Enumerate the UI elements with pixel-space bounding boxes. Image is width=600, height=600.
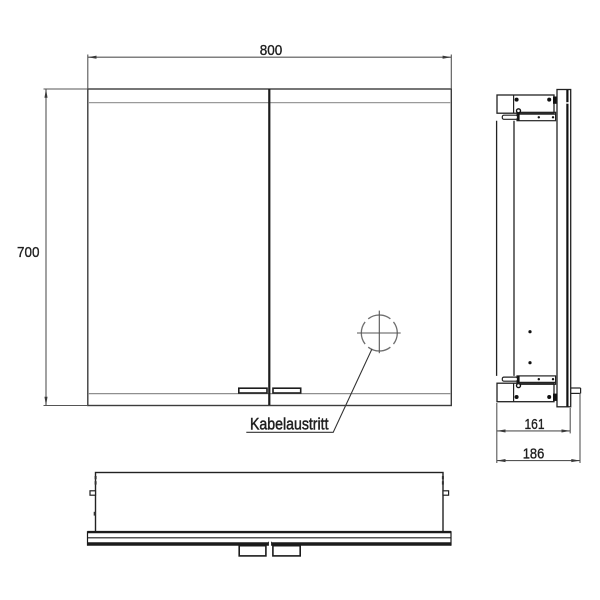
svg-text:700: 700 — [17, 244, 40, 261]
svg-text:800: 800 — [260, 42, 283, 59]
svg-text:161: 161 — [525, 416, 545, 433]
svg-text:186: 186 — [523, 445, 545, 462]
svg-text:Kabelaustritt: Kabelaustritt — [250, 416, 329, 434]
